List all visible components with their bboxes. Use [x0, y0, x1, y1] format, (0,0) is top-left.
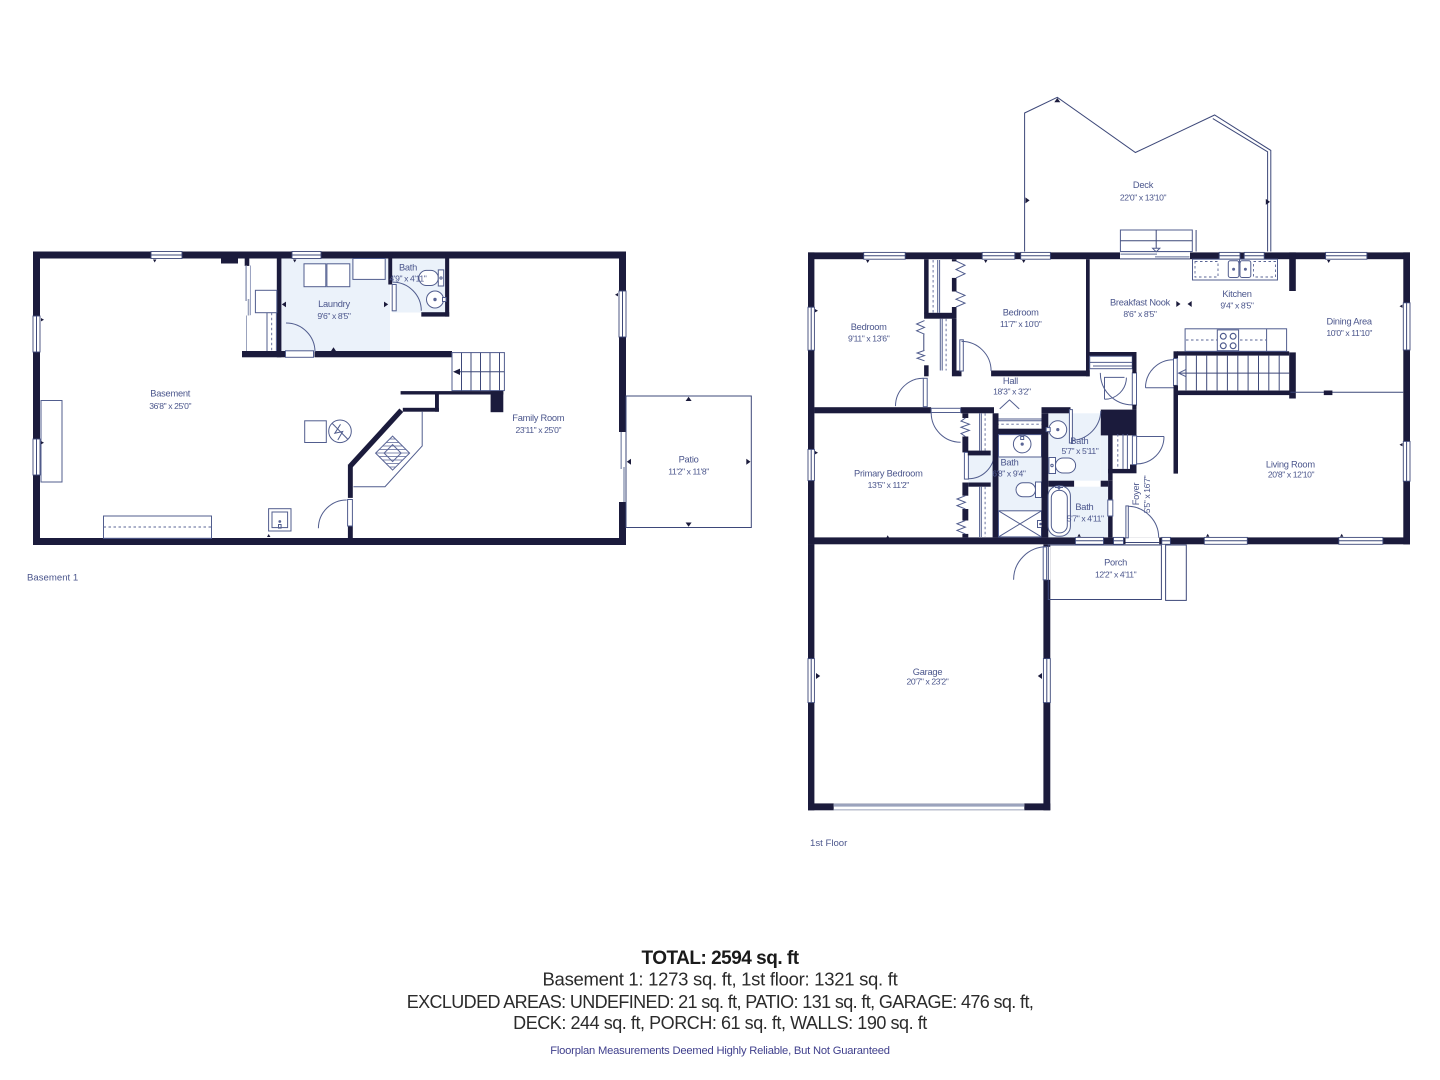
svg-text:Bedroom: Bedroom	[1003, 308, 1039, 318]
svg-text:Kitchen: Kitchen	[1222, 289, 1251, 299]
svg-text:6'8" x 9'4": 6'8" x 9'4"	[992, 469, 1026, 479]
svg-text:Foyer: Foyer	[1131, 483, 1141, 506]
svg-text:Garage: Garage	[913, 667, 943, 677]
svg-text:20'8" x 12'10": 20'8" x 12'10"	[1268, 470, 1315, 480]
svg-text:5'7" x 4'11": 5'7" x 4'11"	[1067, 513, 1104, 523]
svg-text:20'7" x 23'2": 20'7" x 23'2"	[907, 677, 949, 687]
svg-text:9'4" x 8'5": 9'4" x 8'5"	[1220, 301, 1254, 311]
svg-text:12'2" x 4'11": 12'2" x 4'11"	[1095, 570, 1137, 580]
svg-text:9'6" x 8'5": 9'6" x 8'5"	[317, 311, 351, 321]
svg-text:36'8" x 25'0": 36'8" x 25'0"	[149, 401, 191, 411]
svg-text:8'6" x 8'5": 8'6" x 8'5"	[1123, 309, 1157, 319]
svg-text:1st Floor: 1st Floor	[810, 838, 848, 849]
svg-text:9'11" x 13'6": 9'11" x 13'6"	[848, 334, 890, 344]
svg-text:EXCLUDED AREAS: UNDEFINED: 21: EXCLUDED AREAS: UNDEFINED: 21 sq. ft, PA…	[407, 992, 1033, 1012]
svg-text:Deck: Deck	[1133, 180, 1154, 190]
svg-text:Bath: Bath	[1070, 436, 1088, 446]
svg-text:5'5" x 16'7": 5'5" x 16'7"	[1142, 475, 1152, 513]
svg-text:Bath: Bath	[399, 263, 417, 273]
svg-text:Dining Area: Dining Area	[1327, 317, 1373, 327]
svg-text:13'5" x 11'2": 13'5" x 11'2"	[868, 480, 910, 490]
svg-text:Breakfast Nook: Breakfast Nook	[1110, 298, 1171, 308]
svg-text:5'7" x 5'11": 5'7" x 5'11"	[1062, 446, 1099, 456]
svg-text:11'7" x 10'0": 11'7" x 10'0"	[1000, 319, 1042, 329]
svg-text:Primary Bedroom: Primary Bedroom	[854, 469, 923, 479]
svg-text:Hall: Hall	[1003, 376, 1018, 386]
svg-text:Basement 1: 1273 sq. ft, 1st f: Basement 1: 1273 sq. ft, 1st floor: 1321…	[543, 969, 898, 990]
svg-text:DECK: 244 sq. ft, PORCH: 61 sq: DECK: 244 sq. ft, PORCH: 61 sq. ft, WALL…	[513, 1013, 927, 1033]
svg-text:11'2" x 11'8": 11'2" x 11'8"	[668, 467, 709, 477]
svg-text:Family Room: Family Room	[512, 413, 565, 423]
svg-text:22'0" x 13'10": 22'0" x 13'10"	[1120, 193, 1167, 203]
svg-text:Patio: Patio	[679, 455, 699, 465]
svg-text:10'0" x 11'10": 10'0" x 11'10"	[1326, 328, 1372, 338]
svg-text:Bedroom: Bedroom	[851, 322, 887, 332]
svg-text:4'9" x 4'11": 4'9" x 4'11"	[390, 274, 427, 284]
svg-text:Porch: Porch	[1104, 558, 1127, 568]
svg-text:23'11" x 25'0": 23'11" x 25'0"	[515, 425, 561, 435]
svg-text:Bath: Bath	[1000, 458, 1018, 468]
svg-text:Basement 1: Basement 1	[27, 573, 78, 584]
svg-text:18'3" x 3'2": 18'3" x 3'2"	[993, 387, 1031, 397]
svg-text:Floorplan Measurements Deemed: Floorplan Measurements Deemed Highly Rel…	[550, 1045, 890, 1057]
svg-text:TOTAL: 2594 sq. ft: TOTAL: 2594 sq. ft	[641, 948, 799, 969]
svg-text:Bath: Bath	[1075, 502, 1093, 512]
svg-text:Basement: Basement	[150, 389, 191, 399]
svg-text:Living Room: Living Room	[1266, 460, 1315, 470]
svg-text:Laundry: Laundry	[318, 299, 350, 309]
